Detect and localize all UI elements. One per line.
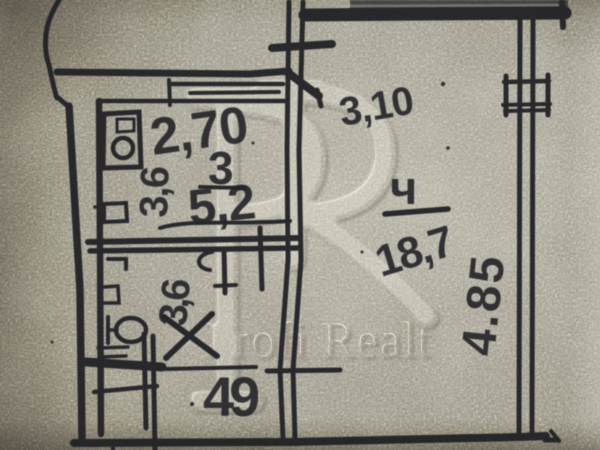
svg-text:49: 49	[203, 365, 259, 428]
svg-text:Profi Realt: Profi Realt	[204, 312, 431, 369]
svg-text:18,7: 18,7	[370, 217, 459, 287]
svg-text:ч: ч	[390, 161, 417, 214]
svg-text:4.85: 4.85	[452, 252, 515, 358]
svg-text:3,6: 3,6	[151, 278, 199, 328]
svg-text:3,6: 3,6	[132, 166, 178, 218]
svg-text:5,2: 5,2	[185, 173, 257, 236]
svg-text:3,10: 3,10	[336, 79, 416, 135]
